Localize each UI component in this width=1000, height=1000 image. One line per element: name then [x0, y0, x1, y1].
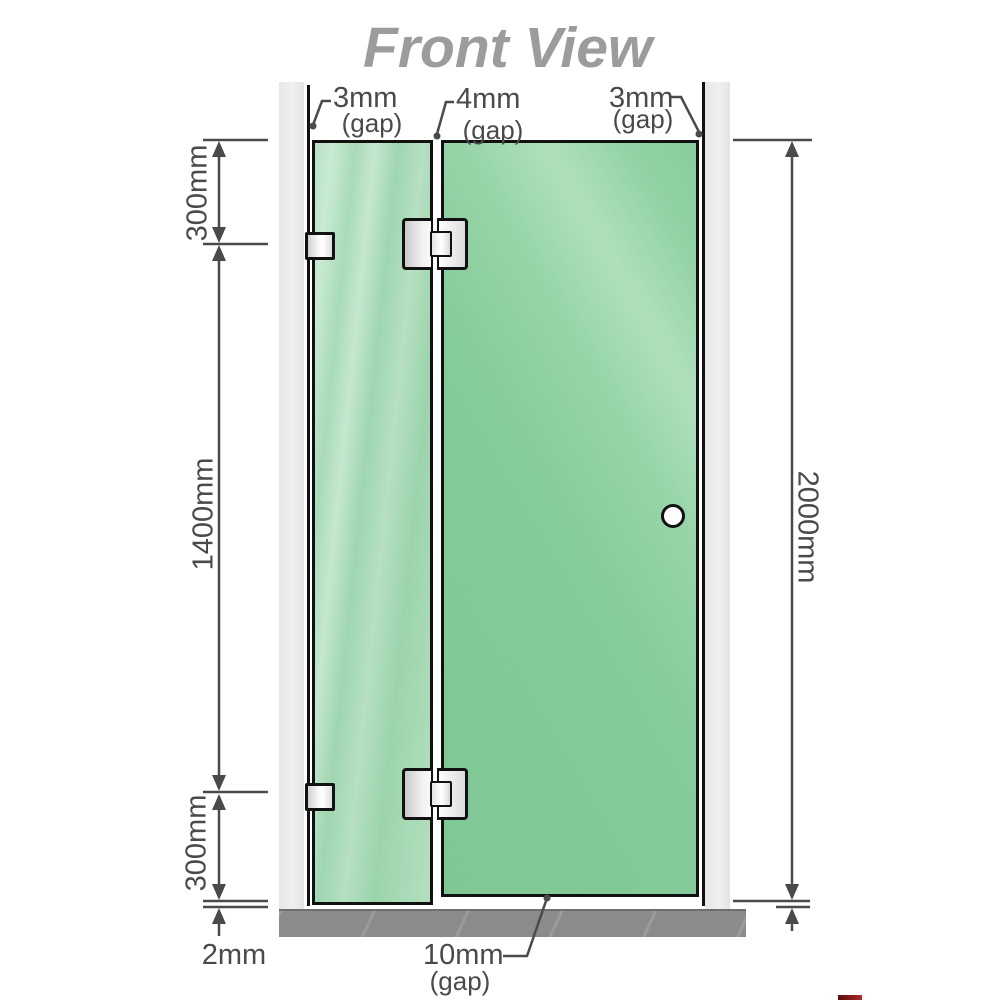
top-gap-value-middle: 4mm: [456, 85, 520, 114]
top-gap-unit-right: (gap): [613, 106, 674, 132]
glass-hinge-bottom: [402, 768, 468, 820]
hinge-gap-line: [431, 255, 439, 270]
floor-base: [279, 909, 746, 937]
wall-bracket-top: [305, 232, 335, 260]
dim-label-1400: 1400mm: [190, 458, 219, 571]
hinge-knuckle: [430, 781, 452, 807]
door-handle-knob: [661, 504, 685, 528]
dim-label-300-top: 300mm: [184, 145, 213, 242]
partial-logo-red-sliver: [838, 995, 862, 1000]
diagram-title: Front View: [363, 20, 652, 77]
glass-hinge-top: [402, 218, 468, 270]
hinge-knuckle: [430, 231, 452, 257]
front-view-diagram: Front View: [0, 0, 1000, 1000]
left-wall-rail: [279, 82, 304, 909]
hinge-gap-line: [431, 805, 439, 820]
dim-label-2000: 2000mm: [793, 471, 822, 584]
top-gap-unit-middle: (gap): [463, 117, 524, 143]
top-gap-unit-left: (gap): [342, 110, 403, 136]
wall-bracket-bottom: [305, 783, 335, 811]
dim-label-2mm: 2mm: [202, 941, 266, 970]
bottom-gap-unit: (gap): [430, 968, 491, 994]
right-wall-rail: [705, 82, 730, 909]
dim-label-300-bottom: 300mm: [183, 795, 212, 892]
